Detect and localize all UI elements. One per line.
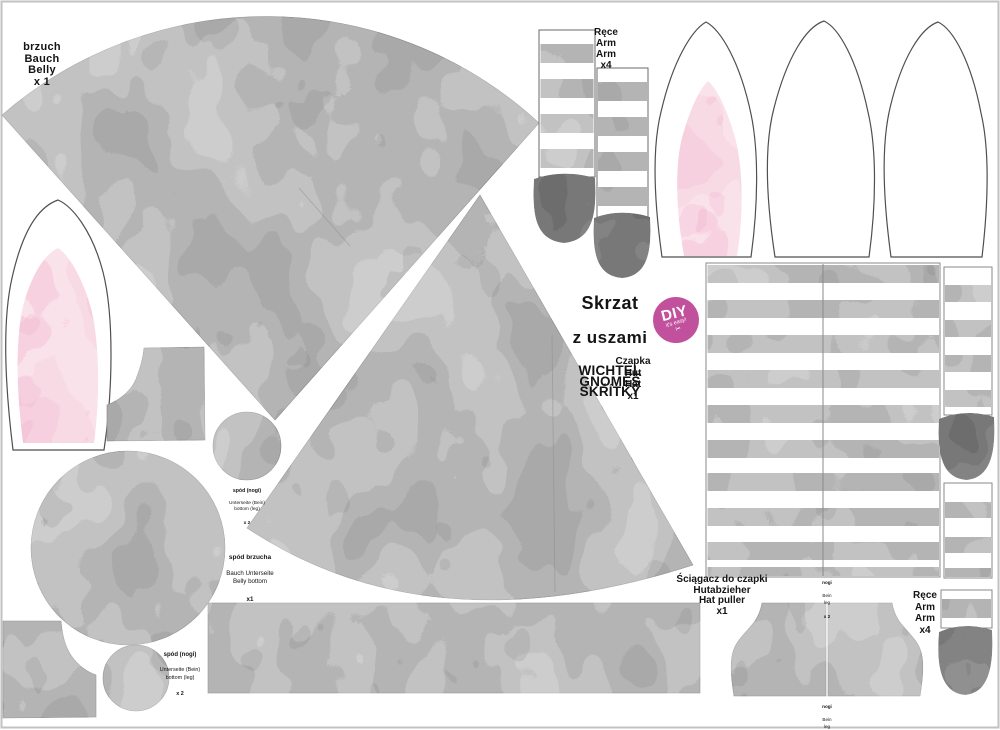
label-belly-bottom-translations: Bauch Unterseite Belly bottom [221,570,279,586]
label-belly: brzuch Bauch Belly x 1 [12,42,72,88]
arm-sleeve-stripes-5 [942,599,991,618]
label-legs-top-title: nogi [806,580,848,586]
label-leg-bottom-1: spód (nogi) Unterseite (Bein) bottom (le… [219,482,275,534]
label-belly-bottom: spód brzucha Bauch Unterseite Belly bott… [221,546,279,612]
label-arms-right: Ręce Arm Arm x4 [901,590,949,636]
label-legs-bottom-title: nogi [806,704,848,710]
arm-hand-3 [939,413,995,480]
label-belly-bottom-count: x1 [221,596,279,604]
label-belly-bottom-title: spód brzucha [221,554,279,562]
label-leg-bottom-1-count: x 2 [219,521,275,527]
ear-outline-right-2 [767,21,874,257]
title-line-1: Skrzat [552,295,668,312]
scissors-icon: ✂ [675,325,682,333]
label-leg-bottom-2: spód (nogi) Unterseite (Bein) bottom (le… [150,645,210,706]
label-legs-top: nogi Bein leg x 2 [806,574,848,627]
label-leg-bottom-2-title: spód (nogi) [150,652,210,659]
label-hat-puller: Ściągacz do czapki Hutabzieher Hat pulle… [660,575,784,617]
label-leg-bottom-2-translations: Unterseite (Bein) bottom (leg) [150,667,210,682]
label-legs-bottom: nogi Bein leg x 2 [806,698,848,730]
label-arms-top: Ręce Arm Arm x4 [584,27,628,71]
sewing-pattern-sheet: brzuch Bauch Belly x 1 Ręce Arm Arm x4 S… [0,0,1000,730]
label-leg-bottom-1-title: spód (nogi) [219,488,275,494]
arm-sleeve-outline-4 [944,483,992,578]
belly-bottom-circle [31,451,225,645]
label-legs-bottom-translations: Bein leg [806,717,848,730]
hat-puller-piece [208,603,700,693]
ear-outline-right-3 [884,22,987,257]
label-leg-bottom-1-translations: Unterseite (Bein) bottom (leg) [219,501,275,513]
arm-hand-2 [594,213,651,278]
boot-piece-2 [3,621,96,718]
pattern-sheet-graphic [0,0,1000,730]
leg-bottom-circle-1 [213,412,281,480]
arm-hand-4 [938,626,992,695]
label-legs-top-translations: Bein leg [806,593,848,606]
label-legs-top-count: x 2 [806,614,848,620]
arm-hand-1 [534,174,596,243]
boot-piece-1 [107,347,205,441]
label-hat: Czapka Hut Hat x1 [607,356,659,402]
title-line-2: z uszami [552,330,668,345]
label-leg-bottom-2-count: x 2 [150,691,210,698]
